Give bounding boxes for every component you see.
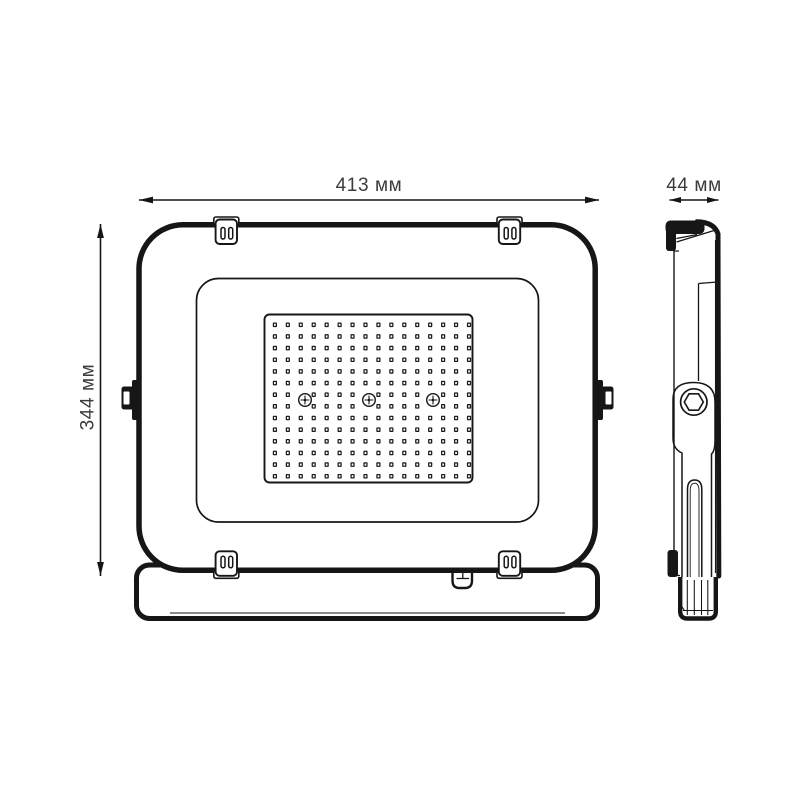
led-dot-center	[326, 429, 328, 431]
led-dot-center	[287, 452, 289, 454]
led-dot-center	[455, 464, 457, 466]
arrow-left-icon	[670, 197, 682, 203]
led-dot-center	[416, 370, 418, 372]
floodlight-dimension-drawing: 413 мм 344 мм 44 мм	[0, 0, 800, 800]
led-dot-center	[352, 452, 354, 454]
led-dot-center	[313, 452, 315, 454]
led-dot-center	[313, 324, 315, 326]
led-dot-center	[455, 335, 457, 337]
led-dot-center	[403, 464, 405, 466]
led-dot-center	[378, 417, 380, 419]
led-dot-center	[274, 335, 276, 337]
led-dot-center	[313, 429, 315, 431]
led-dot-center	[339, 359, 341, 361]
led-dot-center	[378, 464, 380, 466]
led-dot-center	[365, 417, 367, 419]
led-dot-center	[429, 382, 431, 384]
bracket-arm-slot-inner	[690, 483, 699, 577]
led-dot-center	[442, 335, 444, 337]
led-dot-center	[313, 382, 315, 384]
led-dot-center	[403, 394, 405, 396]
led-dot-center	[429, 475, 431, 477]
led-dot-center	[416, 347, 418, 349]
led-dot-center	[416, 324, 418, 326]
led-dot-center	[378, 382, 380, 384]
led-dot-center	[287, 347, 289, 349]
led-dot-center	[326, 382, 328, 384]
led-dot-center	[300, 335, 302, 337]
led-dot-center	[287, 464, 289, 466]
led-dot-center	[287, 405, 289, 407]
clip-bottom-right	[497, 551, 522, 578]
screw-icon	[427, 394, 440, 407]
led-dot-center	[429, 335, 431, 337]
led-dot-center	[378, 429, 380, 431]
led-dot-center	[326, 347, 328, 349]
led-dot-center	[429, 464, 431, 466]
side-bezel-step	[699, 282, 718, 381]
led-dot-center	[300, 452, 302, 454]
led-dot-center	[391, 429, 393, 431]
led-dot-center	[274, 405, 276, 407]
led-dot-center	[274, 359, 276, 361]
led-dot-center	[339, 464, 341, 466]
led-dot-center	[429, 324, 431, 326]
arrow-down-icon	[97, 562, 104, 576]
led-dot-center	[391, 324, 393, 326]
led-dot-center	[403, 347, 405, 349]
led-dot-center	[300, 440, 302, 442]
led-dot-center	[468, 417, 470, 419]
led-dot-center	[455, 417, 457, 419]
led-dot-center	[455, 405, 457, 407]
led-dot-center	[378, 347, 380, 349]
led-dot-center	[326, 475, 328, 477]
led-dot-center	[442, 452, 444, 454]
arrow-right-icon	[707, 197, 719, 203]
led-dot-center	[287, 440, 289, 442]
led-dot-center	[287, 475, 289, 477]
led-dot-center	[391, 405, 393, 407]
led-dot-center	[429, 359, 431, 361]
led-dot-center	[287, 335, 289, 337]
led-dot-center	[455, 452, 457, 454]
width-dimension-label: 413 мм	[336, 175, 403, 196]
led-dot-center	[403, 324, 405, 326]
led-dot-center	[455, 347, 457, 349]
led-dot-center	[429, 429, 431, 431]
led-dot-center	[339, 335, 341, 337]
led-dot-center	[287, 324, 289, 326]
led-dot-center	[378, 405, 380, 407]
led-dot-center	[378, 335, 380, 337]
led-dot-center	[468, 452, 470, 454]
led-dot-center	[287, 394, 289, 396]
led-dot-center	[416, 405, 418, 407]
led-dot-center	[442, 417, 444, 419]
led-dot-center	[313, 394, 315, 396]
led-dot-center	[287, 370, 289, 372]
led-dot-center	[274, 429, 276, 431]
led-dot-center	[416, 429, 418, 431]
led-dot-center	[326, 394, 328, 396]
depth-dimension-label: 44 мм	[666, 175, 722, 196]
led-dot-center	[403, 440, 405, 442]
arrow-right-icon	[585, 197, 599, 204]
led-dot-center	[416, 359, 418, 361]
led-dot-center	[391, 335, 393, 337]
led-dot-center	[313, 475, 315, 477]
led-dot-center	[416, 335, 418, 337]
height-dimension: 344 мм	[78, 224, 104, 576]
led-dot-center	[274, 475, 276, 477]
led-dot-center	[352, 359, 354, 361]
led-dot-center	[274, 464, 276, 466]
led-dot-center	[300, 359, 302, 361]
side-view	[666, 221, 719, 619]
led-dot-center	[468, 359, 470, 361]
led-dot-center	[339, 382, 341, 384]
led-dot-center	[352, 417, 354, 419]
led-dot-center	[326, 417, 328, 419]
led-dot-center	[287, 359, 289, 361]
led-dot-center	[468, 440, 470, 442]
led-dot-center	[403, 475, 405, 477]
led-dot-center	[378, 440, 380, 442]
led-dot-center	[274, 324, 276, 326]
led-dot-center	[391, 347, 393, 349]
led-dot-center	[391, 440, 393, 442]
led-dot-center	[352, 475, 354, 477]
led-dot-center	[326, 335, 328, 337]
led-dot-center	[442, 464, 444, 466]
led-dot-center	[365, 464, 367, 466]
led-dot-center	[378, 324, 380, 326]
led-dot-center	[352, 335, 354, 337]
led-dot-center	[300, 464, 302, 466]
led-dot-center	[403, 370, 405, 372]
led-dot-center	[365, 335, 367, 337]
bracket-foot	[674, 576, 716, 619]
height-dimension-label: 344 мм	[78, 364, 99, 431]
led-dot-center	[352, 429, 354, 431]
led-dot-center	[442, 382, 444, 384]
led-dot-center	[352, 464, 354, 466]
led-dot-center	[378, 475, 380, 477]
arrow-left-icon	[139, 197, 153, 204]
led-dot-center	[339, 405, 341, 407]
arrow-up-icon	[97, 224, 104, 238]
led-dot-center	[416, 382, 418, 384]
led-dot-center	[391, 475, 393, 477]
led-dot-center	[403, 429, 405, 431]
led-dot-center	[455, 370, 457, 372]
led-dot-center	[326, 440, 328, 442]
led-dot-center	[403, 417, 405, 419]
led-dot-center	[274, 452, 276, 454]
led-dot-center	[274, 417, 276, 419]
led-dot-center	[339, 370, 341, 372]
led-dot-center	[365, 452, 367, 454]
led-dot-center	[403, 359, 405, 361]
front-view	[122, 217, 614, 619]
led-dot-center	[429, 452, 431, 454]
led-dot-center	[442, 475, 444, 477]
led-dot-center	[455, 324, 457, 326]
led-dot-center	[442, 429, 444, 431]
led-dot-center	[339, 440, 341, 442]
led-dot-center	[429, 347, 431, 349]
led-dot-center	[468, 429, 470, 431]
led-dot-center	[313, 335, 315, 337]
led-dot-center	[352, 405, 354, 407]
led-dot-center	[429, 417, 431, 419]
led-dot-center	[442, 440, 444, 442]
led-dot-center	[326, 464, 328, 466]
led-dot-center	[274, 382, 276, 384]
led-dot-center	[274, 347, 276, 349]
led-dot-center	[468, 405, 470, 407]
led-dot-center	[313, 347, 315, 349]
led-dot-center	[365, 440, 367, 442]
screw-icon	[299, 394, 312, 407]
led-dot-center	[352, 394, 354, 396]
led-dot-center	[339, 452, 341, 454]
led-dot-center	[352, 382, 354, 384]
led-dot-center	[339, 324, 341, 326]
led-dot-center	[391, 370, 393, 372]
led-dot-center	[429, 440, 431, 442]
led-dot-center	[416, 394, 418, 396]
led-dot-center	[468, 475, 470, 477]
led-dot-center	[365, 370, 367, 372]
led-dot-center	[391, 452, 393, 454]
led-dot-center	[326, 370, 328, 372]
led-dot-center	[339, 429, 341, 431]
led-dot-center	[416, 475, 418, 477]
left-pivot-knob	[122, 380, 141, 420]
led-dot-center	[300, 324, 302, 326]
led-dot-center	[352, 324, 354, 326]
led-dot-center	[468, 347, 470, 349]
led-dot-center	[378, 452, 380, 454]
led-dot-center	[313, 417, 315, 419]
side-bottom-clip-tab	[668, 550, 679, 577]
led-dot-center	[416, 440, 418, 442]
led-dot-center	[468, 335, 470, 337]
led-dot-center	[287, 382, 289, 384]
depth-dimension: 44 мм	[666, 175, 722, 203]
led-dot-center	[339, 394, 341, 396]
led-dot-center	[416, 452, 418, 454]
led-dot-center	[313, 370, 315, 372]
led-dot-center	[287, 429, 289, 431]
drawing-page: 413 мм 344 мм 44 мм	[0, 0, 800, 800]
led-dot-center	[455, 394, 457, 396]
led-dot-center	[442, 359, 444, 361]
led-dot-center	[442, 324, 444, 326]
led-dot-center	[365, 429, 367, 431]
led-dot-center	[391, 382, 393, 384]
led-dot-center	[391, 464, 393, 466]
led-dot-center	[352, 440, 354, 442]
led-dot-center	[300, 417, 302, 419]
led-dot-center	[403, 382, 405, 384]
led-dot-center	[442, 370, 444, 372]
led-dot-center	[455, 359, 457, 361]
led-dot-center	[378, 370, 380, 372]
led-dot-center	[468, 370, 470, 372]
led-dot-center	[378, 394, 380, 396]
led-dot-center	[313, 405, 315, 407]
led-dot-center	[326, 324, 328, 326]
led-dot-center	[416, 464, 418, 466]
led-dot-center	[365, 347, 367, 349]
led-dot-center	[339, 417, 341, 419]
led-dot-center	[300, 429, 302, 431]
led-dot-center	[339, 475, 341, 477]
led-dot-center	[365, 382, 367, 384]
led-dot-center	[274, 370, 276, 372]
led-dot-center	[455, 382, 457, 384]
led-dot-center	[455, 440, 457, 442]
clip-top-left	[214, 217, 239, 244]
led-dot-center	[313, 440, 315, 442]
screw-icon	[363, 394, 376, 407]
led-dot-center	[378, 359, 380, 361]
led-dot-center	[300, 475, 302, 477]
clip-top-right	[497, 217, 522, 244]
width-dimension: 413 мм	[139, 175, 599, 203]
led-dot-center	[352, 370, 354, 372]
led-dot-center	[442, 405, 444, 407]
bracket-arm-slot	[688, 480, 702, 577]
led-dot-center	[300, 382, 302, 384]
led-dot-center	[442, 347, 444, 349]
led-dot-center	[313, 464, 315, 466]
led-dot-center	[455, 429, 457, 431]
led-dot-center	[326, 452, 328, 454]
led-dot-center	[365, 475, 367, 477]
led-dot-center	[416, 417, 418, 419]
led-dot-center	[403, 405, 405, 407]
led-dot-center	[365, 359, 367, 361]
led-dot-center	[391, 394, 393, 396]
led-dot-center	[300, 370, 302, 372]
led-dot-center	[274, 394, 276, 396]
led-dot-center	[391, 359, 393, 361]
led-dot-center	[287, 417, 289, 419]
led-dot-center	[365, 324, 367, 326]
led-dot-center	[442, 394, 444, 396]
led-dot-center	[391, 417, 393, 419]
led-dot-center	[326, 405, 328, 407]
clip-bottom-left	[214, 551, 239, 578]
led-dot-center	[403, 452, 405, 454]
led-dot-center	[455, 475, 457, 477]
led-dot-center	[468, 394, 470, 396]
led-dot-center	[429, 370, 431, 372]
hex-bolt-icon	[681, 389, 707, 415]
led-dot-center	[300, 347, 302, 349]
led-dot-center	[352, 347, 354, 349]
right-pivot-knob	[595, 380, 614, 420]
led-dot-center	[313, 359, 315, 361]
led-dot-center	[468, 382, 470, 384]
led-dot-center	[468, 324, 470, 326]
led-dot-center	[326, 359, 328, 361]
led-dot-center	[468, 464, 470, 466]
led-dot-center	[274, 440, 276, 442]
led-dot-center	[403, 335, 405, 337]
led-dot-center	[339, 347, 341, 349]
